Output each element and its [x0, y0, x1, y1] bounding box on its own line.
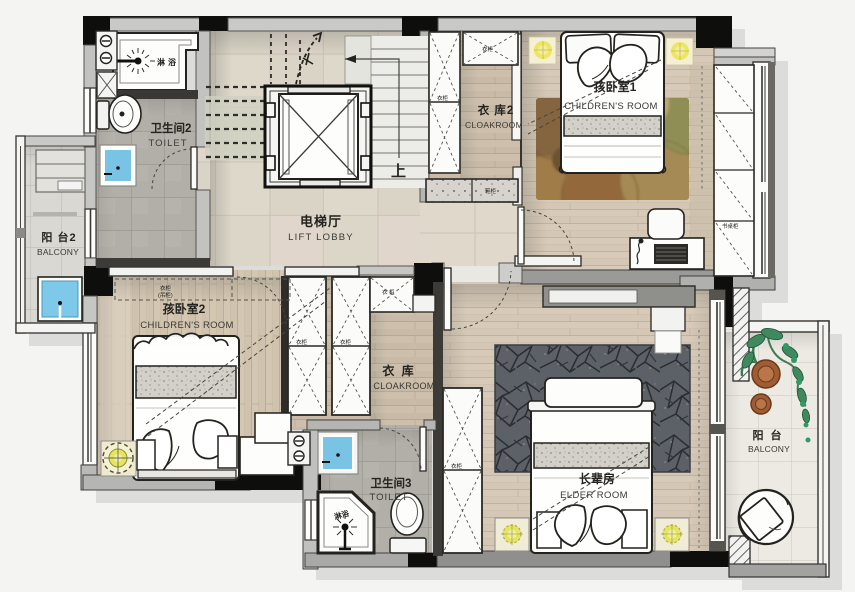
svg-text:TOILET: TOILET	[369, 492, 408, 503]
svg-text:衣柜: 衣柜	[296, 338, 308, 346]
svg-text:衣柜: 衣柜	[482, 45, 494, 53]
svg-text:淋浴: 淋浴	[157, 57, 179, 67]
svg-text:书桌柜: 书桌柜	[722, 222, 739, 230]
svg-text:CLOAKROOM: CLOAKROOM	[465, 120, 523, 130]
svg-text:电梯厅: 电梯厅	[300, 214, 342, 229]
svg-text:鞋柜: 鞋柜	[485, 187, 497, 195]
svg-text:阳 台2: 阳 台2	[41, 230, 76, 244]
svg-text:孩卧室1: 孩卧室1	[594, 79, 637, 94]
svg-text:ELDER ROOM: ELDER ROOM	[560, 490, 628, 501]
svg-text:CHILDREN'S ROOM: CHILDREN'S ROOM	[564, 101, 657, 112]
svg-text:衣柜: 衣柜	[437, 94, 449, 102]
svg-text:上: 上	[391, 163, 406, 180]
svg-text:衣 柜: 衣 柜	[382, 288, 395, 296]
svg-text:衣柜: 衣柜	[451, 462, 463, 470]
svg-text:BALCONY: BALCONY	[37, 247, 79, 257]
svg-text:卫生间3: 卫生间3	[371, 476, 412, 490]
svg-text:CLOAKROOM: CLOAKROOM	[373, 381, 434, 391]
svg-text:衣 库: 衣 库	[382, 363, 415, 378]
svg-text:衣 库2: 衣 库2	[478, 103, 515, 117]
svg-text:长辈房: 长辈房	[579, 471, 615, 486]
svg-text:衣柜: 衣柜	[340, 338, 352, 346]
svg-text:LIFT LOBBY: LIFT LOBBY	[288, 232, 354, 243]
svg-text:卫生间2: 卫生间2	[151, 121, 192, 135]
svg-text:衣柜: 衣柜	[160, 284, 172, 292]
svg-text:BALCONY: BALCONY	[748, 444, 790, 454]
svg-text:TOILET: TOILET	[148, 138, 187, 149]
svg-text:孩卧室2: 孩卧室2	[163, 301, 206, 316]
svg-text:CHILDREN'S ROOM: CHILDREN'S ROOM	[140, 320, 233, 331]
svg-text:阳 台: 阳 台	[752, 428, 783, 442]
svg-text:(吊柜): (吊柜)	[158, 291, 173, 299]
